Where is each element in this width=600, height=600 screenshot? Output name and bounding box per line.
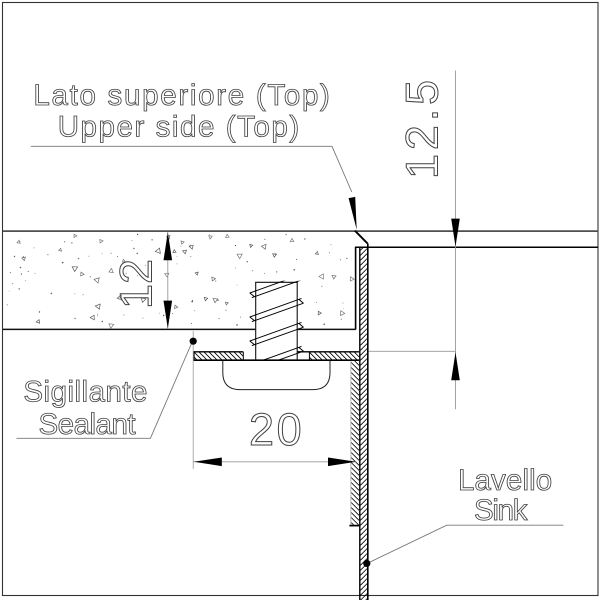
svg-text:12: 12 [111,259,162,309]
svg-text:12.5: 12.5 [397,76,448,179]
svg-text:Sink: Sink [474,494,528,527]
svg-text:20: 20 [249,404,304,455]
svg-text:Lavello: Lavello [458,464,552,497]
svg-text:Sealant: Sealant [39,408,136,441]
svg-text:Lato superiore (Top): Lato superiore (Top) [33,79,331,112]
svg-text:Sigillante: Sigillante [23,375,148,408]
svg-text:Upper side (Top): Upper side (Top) [58,110,301,143]
